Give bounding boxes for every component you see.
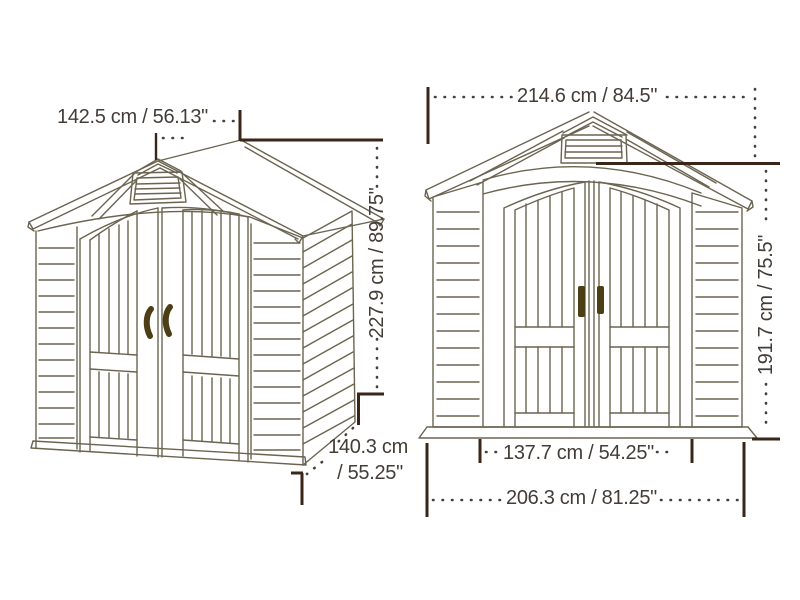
dim-base-width-label: 206.3 cm / 81.25" (506, 487, 657, 509)
dim-floor-depth-label-in: / 55.25" (328, 462, 412, 484)
perspective-roof (28, 140, 384, 243)
perspective-shed-drawing (28, 140, 384, 465)
perspective-front-wall (36, 211, 303, 465)
right-door-handle-icon[interactable] (166, 307, 170, 334)
dim-height-label: 227.9 cm / 89.75" (366, 183, 388, 343)
left-door-handle-icon[interactable] (578, 286, 585, 317)
dim-door-height-label: 191.7 cm / 75.5" (755, 225, 777, 385)
front-shed-drawing (419, 112, 757, 438)
shed-dimension-diagram: 142.5 cm / 56.13" 227.9 cm / 89.75" 140.… (0, 0, 800, 600)
diagram-canvas (0, 0, 800, 600)
right-door-handle-icon[interactable] (597, 286, 604, 314)
dim-overall-width-label: 214.6 cm / 84.5" (517, 85, 657, 107)
front-doors[interactable] (504, 181, 680, 427)
front-gable-vent-icon (561, 117, 627, 163)
dim-door-width-label: 137.7 cm / 54.25" (503, 442, 654, 464)
perspective-base (31, 441, 306, 465)
front-wall (433, 167, 742, 427)
perspective-side-wall (303, 211, 355, 465)
front-base (419, 427, 757, 438)
dim-roof-depth-label: 142.5 cm / 56.13" (57, 106, 208, 128)
perspective-doors[interactable] (80, 207, 248, 462)
dim-floor-depth-label-cm: 140.3 cm (326, 436, 410, 458)
left-door-handle-icon[interactable] (147, 309, 151, 336)
